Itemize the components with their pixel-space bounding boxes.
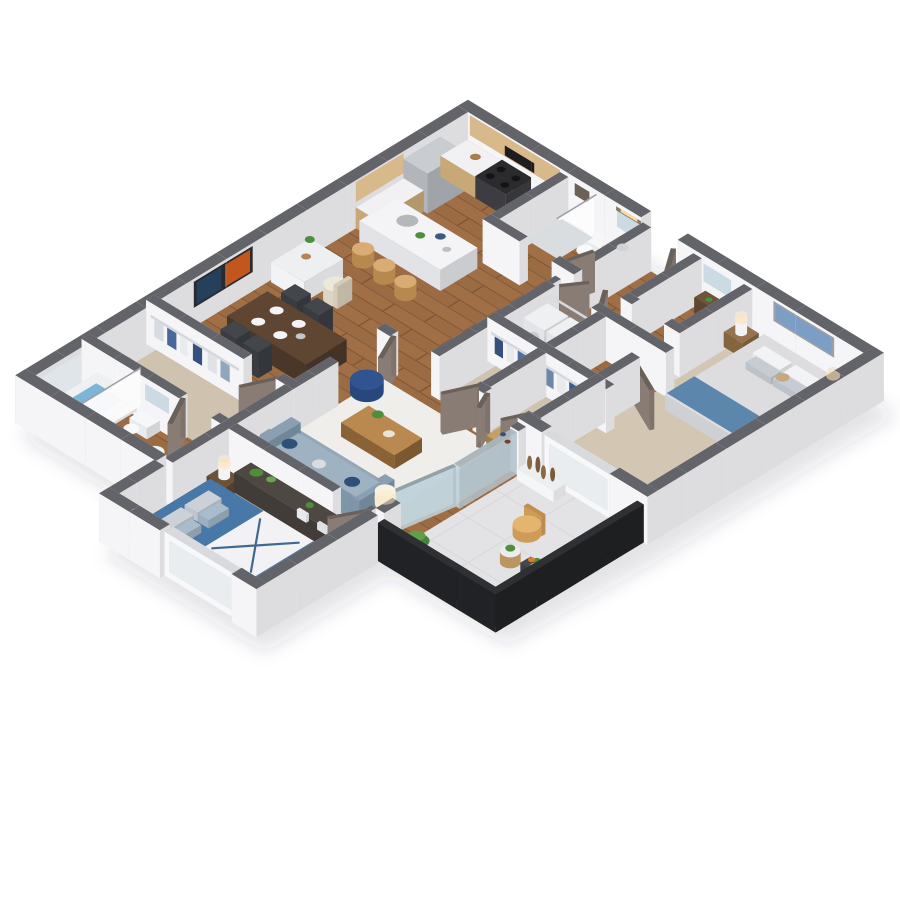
planter-branch: [550, 468, 555, 482]
dinner-plate: [270, 307, 284, 315]
stove-burner: [486, 173, 495, 179]
planter-branch: [527, 456, 532, 470]
flowers-orange: [528, 557, 535, 562]
bar-stool: [352, 242, 374, 268]
bar-stool: [373, 259, 395, 285]
floorplan-svg: [0, 0, 900, 900]
planter-branch: [535, 457, 540, 473]
bed1-lamp-glow: [826, 371, 840, 381]
island-bowl: [442, 247, 451, 252]
dining-deco-bowl: [296, 333, 306, 339]
floor-lamp-glow: [374, 491, 396, 505]
coffee-table-plant: [372, 410, 384, 418]
coffee-table-book: [383, 430, 395, 437]
bar-cart-bottle: [500, 432, 506, 436]
bed2-lamp-glow: [217, 459, 231, 469]
wicker-chair-seat: [513, 515, 542, 542]
page: [0, 0, 900, 900]
stove-burner: [497, 167, 506, 173]
sofa-pillow-navy: [344, 477, 360, 487]
bar-stool: [394, 275, 416, 301]
island-sink: [396, 215, 418, 227]
patio-table-plant: [505, 545, 515, 552]
sofa-pillow-gray: [312, 459, 326, 468]
floorplan-3d-render: [15, 100, 897, 653]
stove-burner: [500, 182, 509, 188]
console-plant: [249, 469, 263, 477]
bar-cart-bottle: [505, 440, 511, 444]
console-plant: [266, 476, 276, 482]
pouf-ottoman: [350, 370, 384, 403]
bed1-lamp-glow: [734, 315, 748, 325]
door-closet-a-right: [441, 384, 479, 435]
stove-burner: [511, 176, 520, 182]
dinner-plate: [251, 318, 265, 326]
desk-plant: [305, 236, 315, 243]
island-bowl-blue: [435, 233, 446, 239]
island-plant: [415, 232, 425, 238]
bath2-sink: [617, 244, 629, 252]
desk-book: [301, 254, 311, 260]
entry-console-plant: [706, 298, 713, 302]
dinner-plate: [292, 320, 306, 328]
dinner-plate: [273, 331, 287, 339]
sofa-pillow-navy: [282, 439, 298, 449]
console-plant: [306, 502, 314, 508]
planter-branch: [541, 465, 546, 479]
counter-basket: [470, 154, 481, 160]
bed1-accent-pillow: [776, 373, 790, 381]
